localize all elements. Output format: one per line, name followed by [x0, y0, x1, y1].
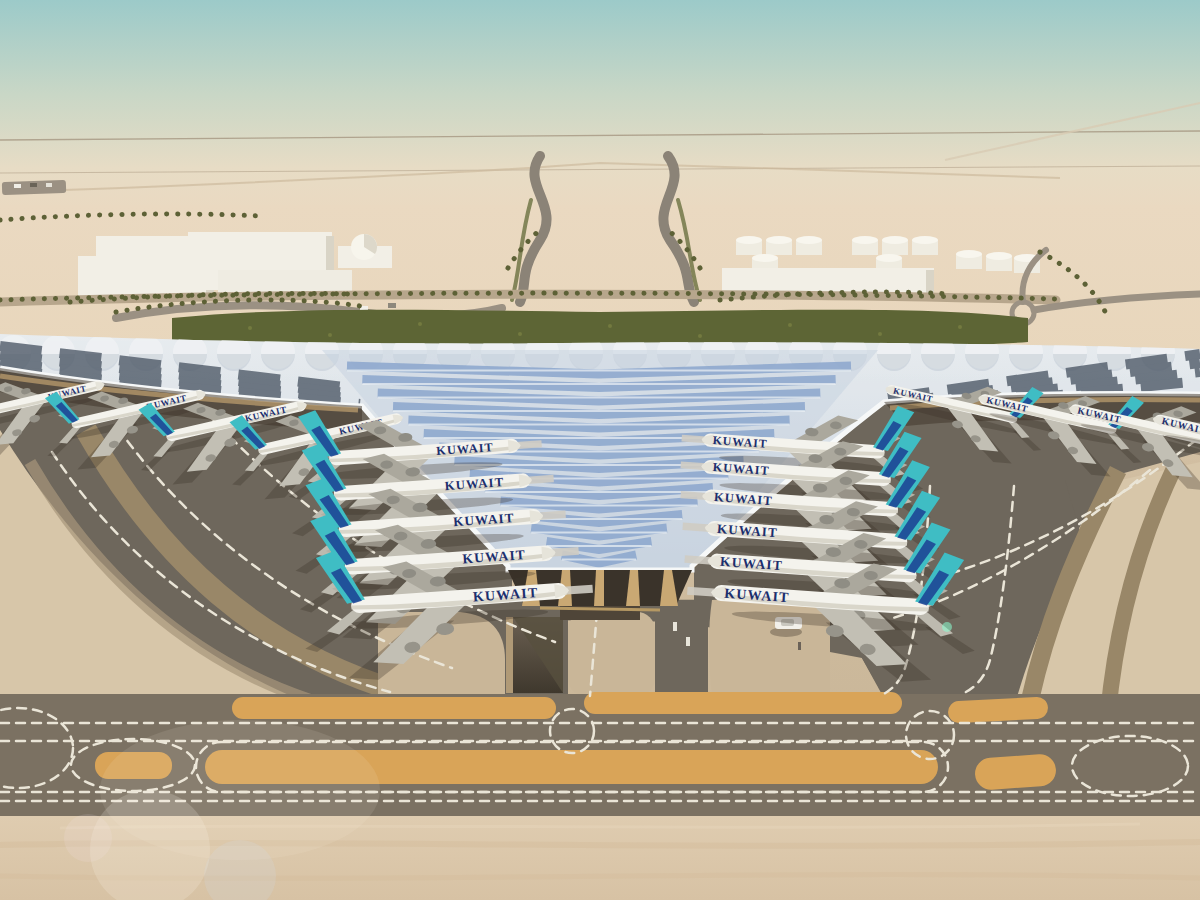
distant-highway	[2, 180, 66, 195]
airport-aerial-rendering: KUWAIT KUWAIT	[0, 0, 1200, 900]
service-ramp	[506, 617, 563, 693]
sky	[0, 0, 1200, 210]
service-leg-right	[655, 600, 708, 700]
